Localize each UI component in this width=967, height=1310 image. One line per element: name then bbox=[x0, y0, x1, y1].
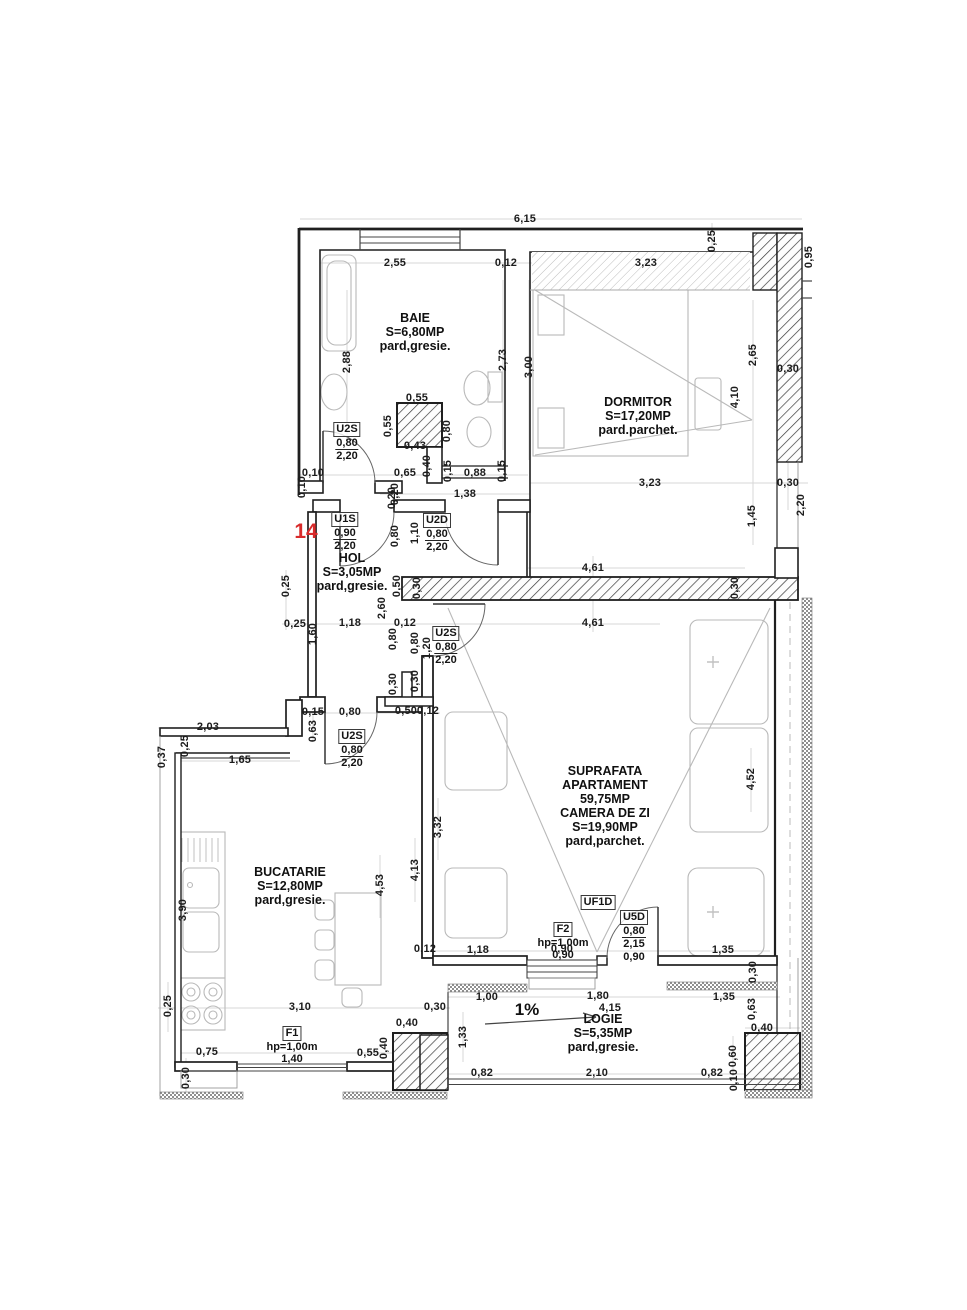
opening-code: U1S bbox=[331, 512, 358, 527]
opening-code: U2D bbox=[423, 513, 451, 528]
room-label-dormitor: DORMITOR S=17,20MP pard.parchet. bbox=[598, 395, 677, 437]
opening-code: U2S bbox=[338, 729, 365, 744]
room-label-hol: HOL S=3,05MP pard,gresie. bbox=[317, 551, 388, 593]
opening-dimension: 1,40 bbox=[266, 1053, 317, 1066]
room-name: DORMITOR bbox=[598, 395, 677, 409]
opening-label-u2d: U2D0,802,20 bbox=[423, 513, 451, 554]
slope-label: 1% bbox=[515, 1000, 540, 1020]
room-area: S=19,90MP bbox=[560, 820, 650, 834]
opening-label-u2s: U2S0,802,20 bbox=[333, 422, 360, 463]
opening-label-f2: F2hp=1,00m0,90 bbox=[537, 922, 588, 962]
opening-dimension: 0,90 bbox=[537, 949, 588, 962]
opening-dimension: 2,20 bbox=[338, 757, 365, 770]
opening-dimension: hp=1,00m bbox=[266, 1041, 317, 1054]
room-area: S=17,20MP bbox=[598, 409, 677, 423]
room-label-baie: BAIE S=6,80MP pard,gresie. bbox=[380, 311, 451, 353]
opening-dimension: 0,90 bbox=[331, 527, 358, 541]
opening-layer: U2S0,802,20U1S0,902,20U2D0,802,20U2S0,80… bbox=[0, 0, 967, 1310]
room-name: LOGIE bbox=[568, 1012, 639, 1026]
opening-dimension: 0,80 bbox=[432, 641, 459, 655]
room-label-logie: LOGIE S=5,35MP pard,gresie. bbox=[568, 1012, 639, 1054]
opening-label-f1: F1hp=1,00m1,40 bbox=[266, 1026, 317, 1066]
opening-dimension: 0,80 bbox=[338, 744, 365, 758]
opening-dimension: 2,15 bbox=[620, 938, 648, 951]
opening-code: U5D bbox=[620, 910, 648, 925]
room-area: S=12,80MP bbox=[254, 879, 326, 893]
opening-label-uf1d: UF1D bbox=[581, 895, 616, 910]
opening-code: UF1D bbox=[581, 895, 616, 910]
room-area: S=5,35MP bbox=[568, 1026, 639, 1040]
room-floor: pard,gresie. bbox=[568, 1040, 639, 1054]
room-floor: pard.parchet. bbox=[598, 423, 677, 437]
room-name: BAIE bbox=[380, 311, 451, 325]
room-label-camera-de-zi: SUPRAFATA APARTAMENT 59,75MP CAMERA DE Z… bbox=[560, 764, 650, 848]
suprafata-line: SUPRAFATA bbox=[560, 764, 650, 778]
opening-label-u2s: U2S0,802,20 bbox=[338, 729, 365, 770]
room-name: CAMERA DE ZI bbox=[560, 806, 650, 820]
opening-dimension: 2,20 bbox=[432, 654, 459, 667]
unit-number: 14 bbox=[294, 520, 317, 544]
opening-dimension: 2,20 bbox=[423, 541, 451, 554]
suprafata-line: APARTAMENT bbox=[560, 778, 650, 792]
room-floor: pard,gresie. bbox=[380, 339, 451, 353]
opening-dimension: hp=1,00m bbox=[537, 937, 588, 950]
floor-plan-page: 6,152,550,123,230,250,952,882,733,000,55… bbox=[0, 0, 967, 1310]
opening-code: U2S bbox=[432, 626, 459, 641]
room-area: S=6,80MP bbox=[380, 325, 451, 339]
room-floor: pard,parchet. bbox=[560, 834, 650, 848]
room-label-bucatarie: BUCATARIE S=12,80MP pard,gresie. bbox=[254, 865, 326, 907]
suprafata-area: 59,75MP bbox=[560, 792, 650, 806]
opening-label-u1s: U1S0,902,20 bbox=[331, 512, 358, 553]
opening-code: F2 bbox=[554, 922, 573, 937]
opening-code: U2S bbox=[333, 422, 360, 437]
room-name: BUCATARIE bbox=[254, 865, 326, 879]
opening-label-u2s: U2S0,802,20 bbox=[432, 626, 459, 667]
room-floor: pard,gresie. bbox=[317, 579, 388, 593]
opening-dimension: 0,80 bbox=[333, 437, 360, 451]
room-floor: pard,gresie. bbox=[254, 893, 326, 907]
opening-dimension: 2,20 bbox=[333, 450, 360, 463]
opening-code: F1 bbox=[283, 1026, 302, 1041]
room-area: S=3,05MP bbox=[317, 565, 388, 579]
opening-dimension: 0,90 bbox=[620, 951, 648, 964]
room-name: HOL bbox=[317, 551, 388, 565]
opening-label-u5d: U5D0,802,150,90 bbox=[620, 910, 648, 963]
opening-dimension: 0,80 bbox=[620, 925, 648, 939]
opening-dimension: 0,80 bbox=[423, 528, 451, 542]
